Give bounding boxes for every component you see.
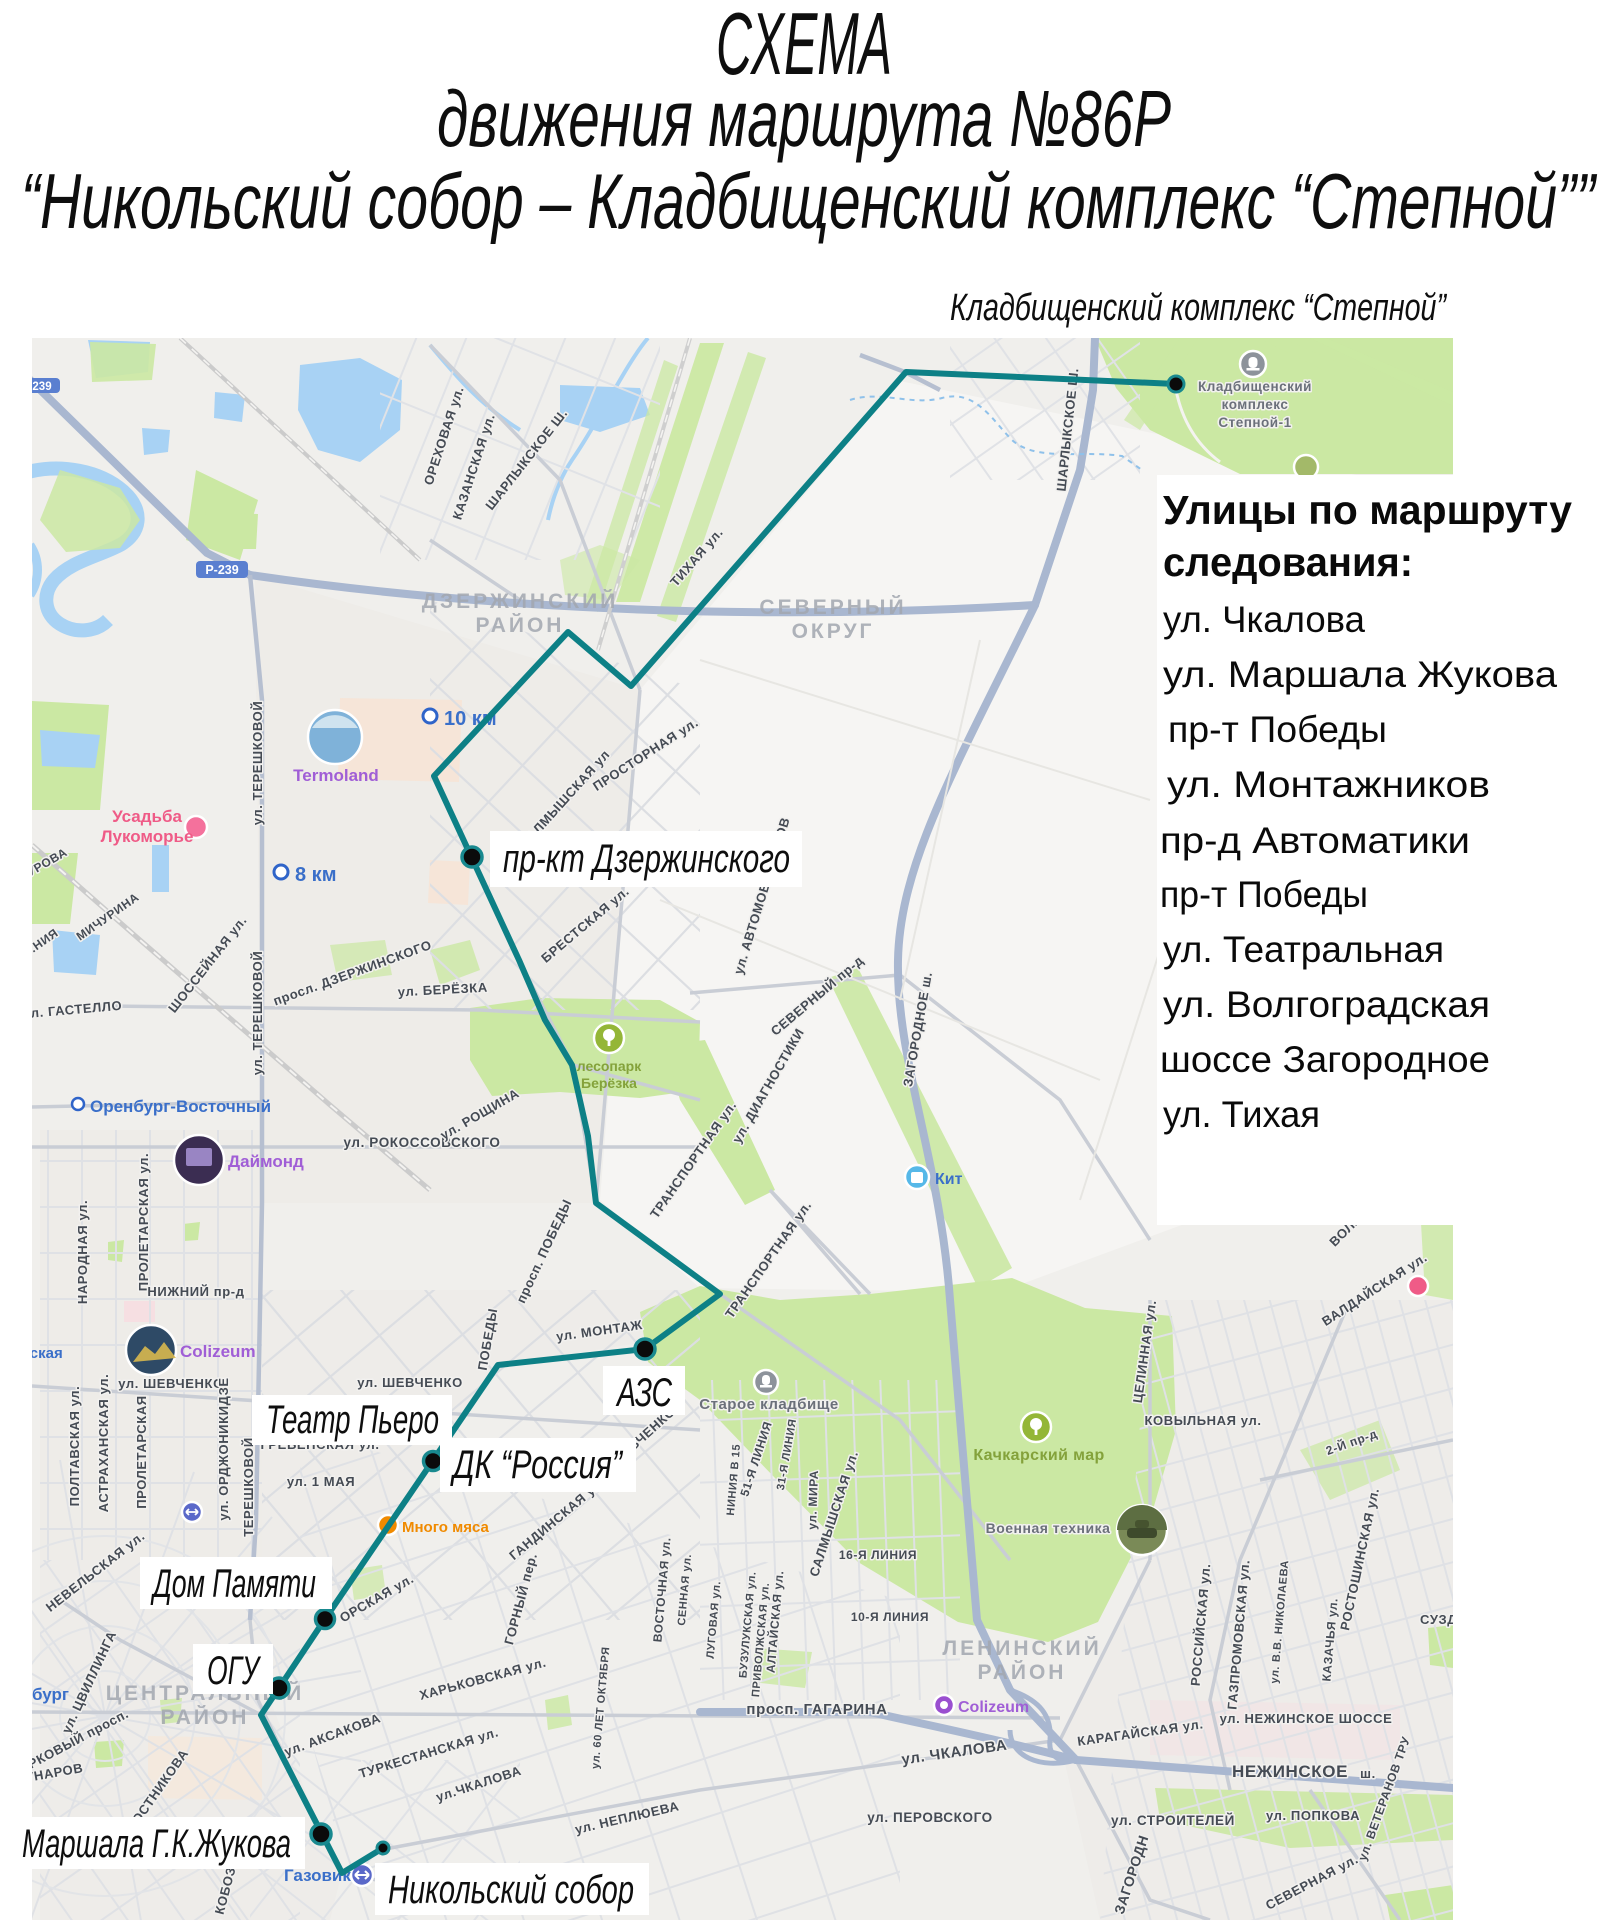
svg-text:ул. МИРА: ул. МИРА bbox=[805, 1470, 821, 1530]
svg-text:ш.: ш. bbox=[1360, 1766, 1376, 1781]
svg-text:ул. Тихая: ул. Тихая bbox=[1163, 1094, 1320, 1135]
svg-text:ТЕРЕШКОВОЙ: ТЕРЕШКОВОЙ bbox=[241, 1437, 256, 1537]
svg-text:Colizeum: Colizeum bbox=[180, 1342, 256, 1361]
svg-text:ул. ОРДЖОНИКИДЗЕ: ул. ОРДЖОНИКИДЗЕ bbox=[216, 1377, 231, 1520]
svg-text:ул. Театральная: ул. Театральная bbox=[1163, 929, 1444, 970]
svg-text:ул. Монтажников: ул. Монтажников bbox=[1167, 764, 1490, 805]
svg-text:ул. ШЕВЧЕНКО: ул. ШЕВЧЕНКО bbox=[118, 1376, 224, 1391]
svg-text:АЗС: АЗС bbox=[616, 1371, 673, 1415]
svg-text:Дом Памяти: Дом Памяти bbox=[150, 1562, 316, 1606]
svg-text:ПОЛТАВСКАЯ ул.: ПОЛТАВСКАЯ ул. bbox=[67, 1386, 82, 1507]
svg-text:пр-д Автоматики: пр-д Автоматики bbox=[1160, 820, 1470, 861]
svg-text:просп. ГАГАРИНА: просп. ГАГАРИНА bbox=[746, 1701, 887, 1718]
svg-text:ул. ПЕРОВСКОГО: ул. ПЕРОВСКОГО bbox=[867, 1810, 993, 1825]
svg-text:ул. Волгоградская: ул. Волгоградская bbox=[1163, 984, 1490, 1025]
svg-text:пр-т Победы: пр-т Победы bbox=[1160, 874, 1368, 915]
svg-text:ДК “Россия”: ДК “Россия” bbox=[450, 1443, 623, 1487]
svg-text:ул. Чкалова: ул. Чкалова bbox=[1163, 599, 1365, 640]
svg-text:ул. Маршала Жукова: ул. Маршала Жукова bbox=[1163, 654, 1557, 695]
svg-text:239: 239 bbox=[32, 381, 51, 393]
svg-text:СЕВЕРНЫЙ: СЕВЕРНЫЙ bbox=[759, 595, 906, 619]
svg-text:РАЙОН: РАЙОН bbox=[978, 1660, 1067, 1684]
svg-text:Качкарский мар: Качкарский мар bbox=[973, 1447, 1104, 1464]
svg-text:Военная техника: Военная техника bbox=[986, 1520, 1111, 1536]
svg-text:ДЗЕРЖИНСКИЙ: ДЗЕРЖИНСКИЙ bbox=[422, 589, 619, 613]
svg-text:НАРОДНАЯ ул.: НАРОДНАЯ ул. bbox=[75, 1200, 90, 1304]
svg-text:лесопарк: лесопарк bbox=[577, 1058, 642, 1074]
svg-text:Даймонд: Даймонд bbox=[228, 1152, 304, 1171]
svg-text:ЛЕНИНСКИЙ: ЛЕНИНСКИЙ bbox=[942, 1636, 1101, 1660]
svg-text:Лукоморье: Лукоморье bbox=[101, 827, 194, 846]
svg-text:Маршала Г.К.Жукова: Маршала Г.К.Жукова bbox=[22, 1822, 291, 1866]
svg-text:НЕЖИНСКОЕ: НЕЖИНСКОЕ bbox=[1232, 1762, 1348, 1781]
svg-text:Р-239: Р-239 bbox=[205, 563, 238, 577]
svg-text:пр-т Победы: пр-т Победы bbox=[1168, 709, 1387, 750]
svg-text:ул. СТРОИТЕЛЕЙ: ул. СТРОИТЕЛЕЙ bbox=[1111, 1813, 1235, 1828]
svg-text:следования:: следования: bbox=[1163, 539, 1413, 585]
svg-text:Усадьба: Усадьба bbox=[112, 807, 182, 826]
svg-text:16-Я ЛИНИЯ: 16-Я ЛИНИЯ bbox=[839, 1548, 917, 1562]
svg-text:РАЙОН: РАЙОН bbox=[161, 1705, 250, 1729]
svg-text:Театр Пьеро: Театр Пьеро bbox=[266, 1398, 439, 1442]
svg-text:Оренбург-Восточный: Оренбург-Восточный bbox=[90, 1097, 271, 1116]
svg-text:НИЖНИЙ пр-д: НИЖНИЙ пр-д bbox=[147, 1284, 244, 1299]
svg-text:РАЙОН: РАЙОН bbox=[476, 613, 565, 637]
svg-text:Colizeum: Colizeum bbox=[958, 1699, 1029, 1716]
svg-text:Много мяса: Много мяса bbox=[402, 1519, 489, 1536]
svg-text:шоссе Загородное: шоссе Загородное bbox=[1160, 1039, 1490, 1080]
svg-text:ул. НЕЖИНСКОЕ ШОССЕ: ул. НЕЖИНСКОЕ ШОССЕ bbox=[1220, 1711, 1393, 1726]
svg-text:Улицы по маршруту: Улицы по маршруту bbox=[1163, 487, 1572, 533]
svg-text:ул. ТЕРЕШКОВОЙ: ул. ТЕРЕШКОВОЙ bbox=[250, 701, 265, 826]
svg-text:8 км: 8 км bbox=[295, 864, 336, 886]
svg-text:ул. ТЕРЕШКОВОЙ: ул. ТЕРЕШКОВОЙ bbox=[250, 951, 265, 1076]
svg-text:комплекс: комплекс bbox=[1222, 397, 1289, 412]
svg-text:ул. ШЕВЧЕНКО: ул. ШЕВЧЕНКО bbox=[357, 1375, 463, 1390]
svg-text:АСТРАХАНСКАЯ ул.: АСТРАХАНСКАЯ ул. bbox=[96, 1374, 111, 1513]
svg-text:КОВЫЛЬНАЯ ул.: КОВЫЛЬНАЯ ул. bbox=[1144, 1413, 1261, 1428]
svg-text:10-Я ЛИНИЯ: 10-Я ЛИНИЯ bbox=[851, 1610, 929, 1624]
svg-text:ул. 1 МАЯ: ул. 1 МАЯ bbox=[287, 1474, 355, 1489]
svg-text:Старое кладбище: Старое кладбище bbox=[699, 1396, 838, 1413]
svg-text:Берёзка: Берёзка bbox=[581, 1075, 637, 1091]
svg-text:Termoland: Termoland bbox=[293, 766, 379, 785]
svg-text:Кит: Кит bbox=[935, 1171, 963, 1188]
svg-text:бург: бург bbox=[32, 1685, 69, 1704]
svg-text:Никольский собор: Никольский собор bbox=[388, 1868, 634, 1912]
svg-text:“Никольский собор – Кладбищенс: “Никольский собор – Кладбищенский компле… bbox=[21, 157, 1597, 245]
svg-text:ОГУ: ОГУ bbox=[207, 1649, 261, 1693]
svg-text:ПРОЛЕТАРСКАЯ: ПРОЛЕТАРСКАЯ bbox=[134, 1395, 149, 1509]
svg-text:Степной-1: Степной-1 bbox=[1218, 415, 1291, 430]
svg-text:ПРОЛЕТАРСКАЯ ул.: ПРОЛЕТАРСКАЯ ул. bbox=[136, 1153, 151, 1291]
svg-text:ул. РОКОССОВСКОГО: ул. РОКОССОВСКОГО bbox=[343, 1135, 500, 1150]
svg-text:пр-кт Дзержинского: пр-кт Дзержинского bbox=[503, 837, 790, 881]
svg-text:движения маршрута №86Р: движения маршрута №86Р bbox=[437, 74, 1171, 163]
svg-text:ОКРУГ: ОКРУГ bbox=[792, 620, 875, 643]
svg-text:ул. ПОПКОВА: ул. ПОПКОВА bbox=[1266, 1808, 1360, 1823]
svg-text:Кладбищенский комплекс “Степно: Кладбищенский комплекс “Степной” bbox=[950, 287, 1448, 329]
svg-text:Кладбищенский: Кладбищенский bbox=[1198, 379, 1312, 394]
